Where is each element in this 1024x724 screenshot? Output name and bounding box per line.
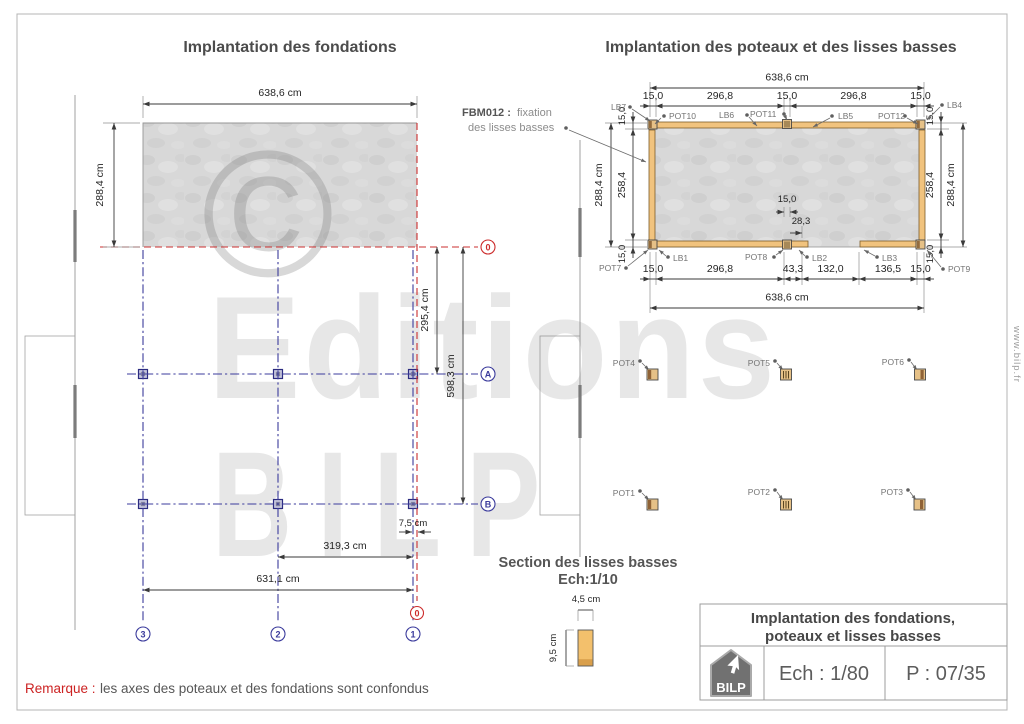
label-pot3: POT3 xyxy=(881,487,903,497)
bilp-logo-text: BILP xyxy=(716,680,746,695)
label-pot5: POT5 xyxy=(748,358,770,368)
dim-zero-to-a: 295,4 cm xyxy=(419,288,431,331)
titleblock-line2: poteaux et lisses basses xyxy=(765,628,941,645)
dim-2584-left: 258,4 xyxy=(616,172,628,198)
label-lb1: LB1 xyxy=(673,253,688,263)
dim-433: 43,3 xyxy=(783,263,804,275)
dim-2968-t2: 296,8 xyxy=(840,90,866,102)
dim-2968-t1: 296,8 xyxy=(707,90,733,102)
label-pot11: POT11 xyxy=(750,109,777,119)
dim-zero-to-b: 598,3 cm xyxy=(445,354,457,397)
drawing-sheet: © Editions BILP Implantation des fondati… xyxy=(0,0,1024,724)
axis-v0: 0 xyxy=(414,608,419,618)
fbm012-code: FBM012 : xyxy=(462,107,511,119)
section-scale: Ech:1/10 xyxy=(558,572,618,588)
section-dim-height: 9,5 cm xyxy=(548,634,559,663)
dim-offset: 7,5 cm xyxy=(399,518,428,529)
dim-slab-height: 288,4 cm xyxy=(94,163,106,206)
titleblock-scale: Ech : 1/80 xyxy=(779,663,869,685)
axis-v2: 2 xyxy=(275,629,280,639)
title-block: Implantation des fondations, poteaux et … xyxy=(700,604,1007,700)
label-pot4: POT4 xyxy=(613,358,635,368)
label-pot2: POT2 xyxy=(748,487,770,497)
fbm012-text: fixation xyxy=(517,107,552,119)
dim-15-t3: 15,0 xyxy=(910,90,931,102)
remark-label: Remarque : xyxy=(25,681,96,696)
titleblock-line1: Implantation des fondations, xyxy=(751,610,955,627)
dim-15-l2: 15,0 xyxy=(617,245,628,264)
label-pot7: POT7 xyxy=(599,263,621,273)
axis-h0: 0 xyxy=(485,242,490,252)
axis-b: B xyxy=(485,499,492,509)
label-pot12: POT12 xyxy=(878,111,905,121)
dim-1320: 132,0 xyxy=(817,263,843,275)
lisse-lb1-shape xyxy=(657,241,783,247)
lisse-lb6-shape xyxy=(657,122,783,128)
axis-v3: 3 xyxy=(140,629,145,639)
label-pot1: POT1 xyxy=(613,488,635,498)
plan-canvas: © Editions BILP Implantation des fondati… xyxy=(0,0,1024,724)
implantation-slab xyxy=(650,123,924,247)
lisse-lb5-shape xyxy=(791,122,916,128)
implantation-dims-right: 15,0 258,4 15,0 288,4 cm xyxy=(924,107,967,264)
dim-15-center: 15,0 xyxy=(778,194,797,205)
dim-bottom-width: 638,6 cm xyxy=(765,292,808,304)
dim-15-b1: 15,0 xyxy=(643,263,664,275)
label-pot6: POT6 xyxy=(882,357,904,367)
remark: Remarque : les axes des poteaux et des f… xyxy=(25,681,429,696)
dim-2584-right: 258,4 xyxy=(924,172,936,198)
dim-15-t2: 15,0 xyxy=(777,90,798,102)
dim-15-t1: 15,0 xyxy=(643,90,664,102)
foundations-title: Implantation des fondations xyxy=(183,39,396,56)
implantation-title: Implantation des poteaux et des lisses b… xyxy=(605,39,956,56)
dim-top-width: 638,6 cm xyxy=(765,72,808,84)
label-lb5: LB5 xyxy=(838,111,853,121)
implantation-dims-left: 288,4 cm 15,0 258,4 15,0 xyxy=(593,107,647,264)
axis-a: A xyxy=(485,369,492,379)
label-lb4: LB4 xyxy=(947,100,962,110)
label-lb3: LB3 xyxy=(882,253,897,263)
lisse-lb3-shape xyxy=(860,241,917,247)
section-dim-width: 4,5 cm xyxy=(572,594,601,605)
label-pot10: POT10 xyxy=(669,111,696,121)
dim-2884-left: 288,4 cm xyxy=(593,163,605,206)
lisse-lb2-shape xyxy=(791,241,808,247)
lisse-section-bottom xyxy=(579,659,593,665)
label-lb7: LB7 xyxy=(611,102,626,112)
dim-slab-width: 638,6 cm xyxy=(258,87,301,99)
dim-axis2-to-1: 319,3 cm xyxy=(323,540,366,552)
existing-wall-left xyxy=(25,95,75,630)
axis-v1: 1 xyxy=(410,629,415,639)
dim-283: 28,3 xyxy=(792,216,811,227)
titleblock-page: P : 07/35 xyxy=(906,663,986,685)
remark-text: les axes des poteaux et des fondations s… xyxy=(100,681,429,696)
website-watermark: www.bilp.fr xyxy=(1011,325,1022,383)
watermark-editions: Editions xyxy=(208,267,778,430)
label-pot8: POT8 xyxy=(745,252,767,262)
lisse-lb7-shape xyxy=(649,130,655,241)
dim-1365: 136,5 xyxy=(875,263,901,275)
dim-15-b2: 15,0 xyxy=(910,263,931,275)
dim-axis3-to-1: 631,1 cm xyxy=(256,573,299,585)
dim-2968-b1: 296,8 xyxy=(707,263,733,275)
label-lb2: LB2 xyxy=(812,253,827,263)
label-lb6: LB6 xyxy=(719,110,734,120)
fbm012-line2: des lisses basses xyxy=(468,122,555,134)
dim-2884-right: 288,4 cm xyxy=(945,163,957,206)
label-pot9: POT9 xyxy=(948,264,970,274)
section-title: Section des lisses basses xyxy=(499,555,678,571)
